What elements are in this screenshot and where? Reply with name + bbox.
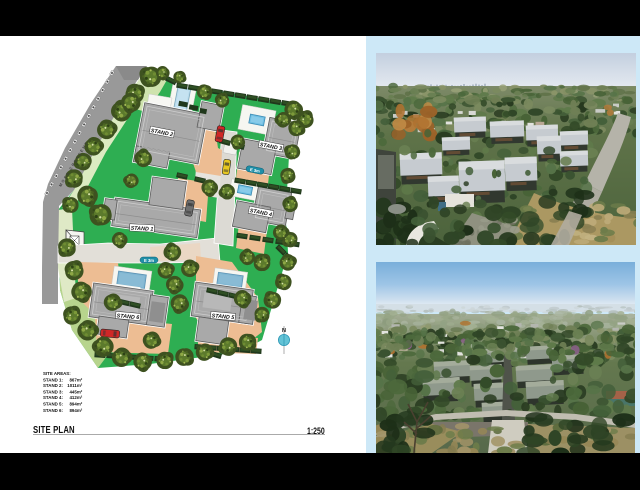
svg-text:N: N xyxy=(282,328,286,334)
svg-text:E 3m: E 3m xyxy=(144,258,154,263)
svg-text:STAND 1: STAND 1 xyxy=(130,226,153,233)
